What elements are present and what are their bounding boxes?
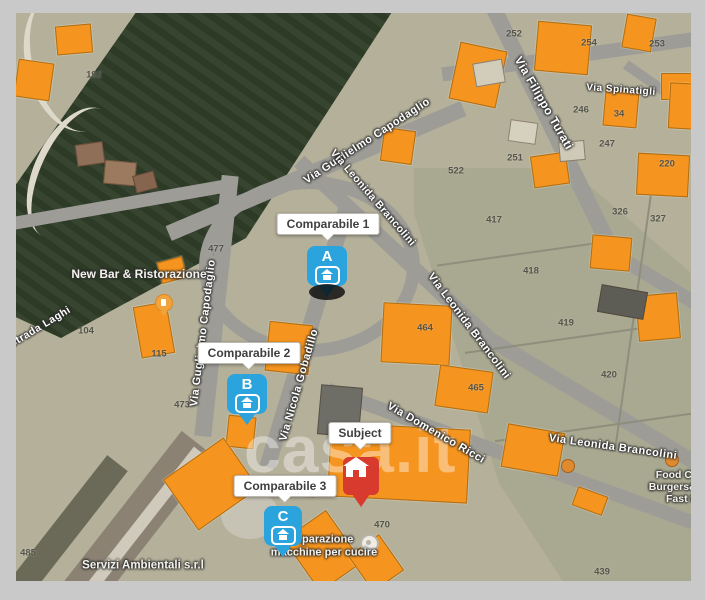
parcel-number: 254: [581, 38, 597, 49]
parcel-number: 326: [612, 207, 628, 218]
place-label: Food ChaBurgers&DriFast f: [649, 469, 691, 505]
bubble-label: Comparabile 1: [287, 217, 370, 231]
marker-letter: A: [307, 248, 347, 265]
house-icon: [235, 394, 260, 413]
parcel-number: 420: [601, 370, 617, 381]
place-label: New Bar & Ristorazione: [71, 268, 206, 282]
parcel-number: 465: [468, 383, 484, 394]
parcel-number: 115: [151, 349, 166, 360]
restaurant-poi-icon[interactable]: [155, 294, 173, 312]
bubble-comparabile-1: Comparabile 1: [277, 213, 380, 235]
parcel-number: 464: [417, 323, 433, 334]
structure: [472, 59, 506, 88]
structure: [508, 119, 539, 145]
marker-shadow: [309, 284, 345, 300]
parcel-number: 418: [523, 266, 539, 277]
place-label: Servizi Ambientali s.r.l: [82, 559, 204, 572]
parcel-number: 104: [78, 326, 94, 337]
building: [16, 59, 54, 102]
marker-comparable-2[interactable]: B: [227, 374, 267, 414]
parcel-number: 253: [649, 39, 665, 50]
marker-letter: B: [227, 376, 267, 393]
bubble-subject: Subject: [328, 422, 391, 444]
parcel-number: 470: [374, 520, 390, 531]
map-canvas[interactable]: casa.it Comparabile 1 A Comparabile 2 B …: [16, 13, 691, 581]
marker-comparable-3[interactable]: C: [264, 506, 302, 546]
marker-letter: C: [264, 508, 302, 525]
parcel-number: 477: [208, 244, 224, 255]
building: [55, 23, 93, 55]
parcel-number: 34: [614, 109, 625, 120]
parcel-number: 192: [86, 70, 102, 81]
poi-dot-icon: [561, 459, 575, 473]
building: [380, 302, 452, 366]
parcel-number: 246: [573, 105, 589, 116]
parcel-number: 327: [650, 214, 666, 225]
building: [434, 364, 493, 413]
parcel-number: 247: [599, 139, 615, 150]
structure: [75, 141, 106, 167]
parcel-number: 251: [507, 153, 523, 164]
screenshot-root: { "map": { "watermark": "casa.it", "mark…: [0, 0, 705, 600]
house-icon: [271, 526, 296, 545]
bubble-comparabile-2: Comparabile 2: [198, 342, 301, 364]
bubble-label: Subject: [338, 426, 381, 440]
parcel-number: 220: [659, 159, 675, 170]
house-icon: [315, 266, 340, 285]
parcel-number: 439: [594, 567, 610, 578]
bubble-comparabile-3: Comparabile 3: [234, 475, 337, 497]
bubble-label: Comparabile 2: [208, 346, 291, 360]
parcel-number: 417: [486, 215, 502, 226]
parcel-number: 485: [20, 548, 36, 559]
bubble-label: Comparabile 3: [244, 479, 327, 493]
structure: [103, 160, 137, 187]
parcel-number: 419: [558, 318, 574, 329]
building: [590, 234, 633, 271]
building: [668, 82, 691, 129]
marker-subject[interactable]: [343, 457, 379, 495]
parcel-number: 252: [506, 29, 522, 40]
parcel-number: 522: [448, 166, 464, 177]
marker-comparable-1[interactable]: A: [307, 246, 347, 286]
